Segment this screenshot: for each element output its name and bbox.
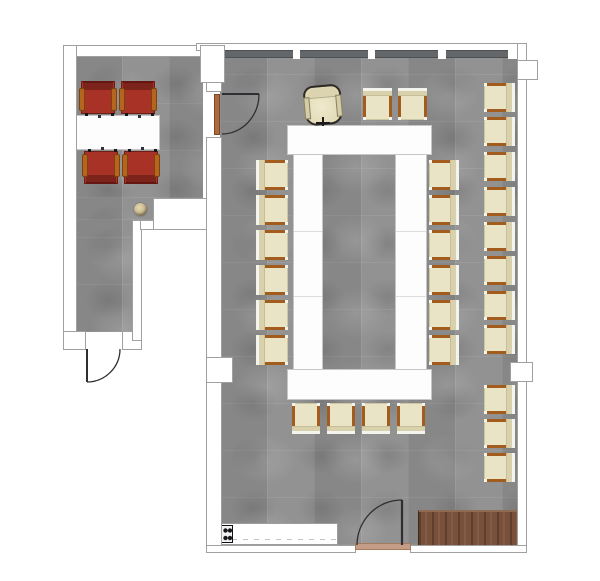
red-task-chair: [121, 81, 155, 114]
conference-chair: [484, 453, 515, 482]
chair-backrest: [363, 88, 392, 96]
chair-armrest: [429, 362, 450, 365]
chair-backrest: [506, 117, 515, 146]
chair-backrest: [450, 265, 459, 295]
chair-armrest: [119, 88, 125, 111]
chair-armrest: [429, 327, 450, 330]
chair-armrest: [265, 327, 288, 330]
chair-backrest: [450, 195, 459, 225]
conference-chair: [256, 335, 288, 365]
conference-chair: [484, 117, 515, 146]
chair-armrest: [303, 97, 311, 119]
conference-chair: [327, 403, 355, 434]
chair-armrest: [265, 257, 288, 260]
chair-armrest: [292, 403, 295, 426]
chair-backrest: [327, 426, 355, 434]
conference-chair: [429, 195, 459, 225]
chair-armrest: [362, 403, 365, 426]
chair-armrest: [317, 403, 320, 426]
conference-chair: [429, 300, 459, 330]
door-leaf-in-left-wall: [214, 94, 220, 135]
chair-backrest: [506, 453, 515, 482]
chair-backrest: [307, 87, 338, 100]
conference-chair: [484, 291, 515, 320]
conference-chair: [292, 403, 320, 434]
chair-armrest: [265, 292, 288, 295]
side-room-table: [75, 115, 160, 150]
pillar-top-left: [200, 45, 225, 83]
chair-armrest: [265, 222, 288, 225]
chair-backrest: [123, 81, 153, 90]
step-wall-lip: [140, 220, 154, 230]
chair-armrest: [424, 96, 427, 120]
side-office-top-wall: [63, 45, 207, 57]
conference-chair: [484, 419, 515, 448]
chair-armrest: [327, 403, 330, 426]
conference-chair: [484, 83, 515, 112]
chair-armrest: [151, 88, 157, 111]
conference-chair: [484, 152, 515, 181]
chair-armrest: [397, 403, 400, 426]
entrance-door-threshold: [355, 543, 411, 550]
chair-backrest: [397, 426, 425, 434]
chair-backrest: [256, 230, 265, 260]
chair-backrest: [86, 175, 116, 184]
chair-armrest: [484, 351, 506, 354]
chair-armrest: [387, 403, 390, 426]
conference-chair: [256, 230, 288, 260]
chair-armrest: [484, 282, 506, 285]
chair-armrest: [363, 96, 366, 120]
chair-armrest: [114, 154, 120, 177]
kitchen-counter: [218, 523, 338, 545]
u-table-left-leg: [293, 154, 323, 370]
chair-armrest: [429, 257, 450, 260]
chair-armrest: [484, 453, 506, 456]
chair-armrest: [484, 152, 506, 155]
chair-backrest: [450, 230, 459, 260]
chair-armrest: [82, 154, 88, 177]
pillar-left-mid: [206, 357, 233, 383]
chair-backrest: [256, 265, 265, 295]
chair-armrest: [484, 248, 506, 251]
conference-chair: [484, 256, 515, 285]
chair-armrest: [429, 187, 450, 190]
chair-backrest: [362, 426, 390, 434]
red-task-chair: [124, 151, 158, 184]
floor-plan: [0, 0, 600, 581]
chair-armrest: [265, 300, 288, 303]
chair-armrest: [265, 265, 288, 268]
chair-armrest: [429, 265, 450, 268]
u-table-right-leg: [395, 154, 427, 370]
red-task-chair: [84, 151, 118, 184]
executive-chair: [302, 83, 343, 126]
wood-sideboard: [418, 510, 518, 547]
chair-backrest: [506, 187, 515, 216]
conference-chair: [256, 195, 288, 225]
chair-armrest: [484, 256, 506, 259]
chair-backrest: [256, 160, 265, 190]
chair-backrest: [506, 291, 515, 320]
chair-armrest: [429, 222, 450, 225]
window-mullion: [508, 49, 517, 59]
chair-armrest: [265, 335, 288, 338]
u-table-bottom: [287, 369, 432, 400]
chair-armrest: [429, 230, 450, 233]
conference-chair: [429, 230, 459, 260]
chair-armrest: [265, 195, 288, 198]
chair-armrest: [265, 187, 288, 190]
chair-backrest: [256, 300, 265, 330]
chair-armrest: [265, 160, 288, 163]
conference-chair: [429, 160, 459, 190]
chair-backrest: [506, 385, 515, 414]
conference-chair: [429, 265, 459, 295]
chair-backrest: [126, 175, 156, 184]
chair-armrest: [429, 300, 450, 303]
chair-armrest: [352, 403, 355, 426]
chair-armrest: [429, 160, 450, 163]
chair-backrest: [83, 81, 113, 90]
chair-armrest: [265, 362, 288, 365]
conference-chair: [484, 187, 515, 216]
chair-armrest: [484, 83, 506, 86]
chair-armrest: [484, 143, 506, 146]
waste-bin: [133, 202, 148, 217]
chair-backrest: [506, 419, 515, 448]
chair-armrest: [429, 292, 450, 295]
corridor-floor: [75, 220, 132, 332]
side-office-left-wall: [63, 45, 77, 350]
chair-armrest: [111, 88, 117, 111]
conference-chair: [256, 265, 288, 295]
conference-chair: [362, 403, 390, 434]
conference-chair: [429, 335, 459, 365]
chair-armrest: [429, 195, 450, 198]
conference-bottom-wall-left: [206, 545, 356, 553]
chair-backrest: [450, 335, 459, 365]
door-swing-arc: [87, 349, 120, 382]
chair-armrest: [484, 479, 506, 482]
chair-armrest: [429, 335, 450, 338]
chair-backrest: [506, 222, 515, 251]
chair-armrest: [484, 411, 506, 414]
chair-armrest: [122, 154, 128, 177]
chair-armrest: [484, 222, 506, 225]
conference-chair: [256, 300, 288, 330]
window-mullion: [368, 49, 375, 59]
stove-symbol: [221, 525, 233, 543]
chair-armrest: [484, 317, 506, 320]
red-task-chair: [81, 81, 115, 114]
chair-armrest: [484, 385, 506, 388]
chair-armrest: [484, 117, 506, 120]
chair-backrest: [450, 300, 459, 330]
chair-armrest: [389, 96, 392, 120]
chair-armrest: [79, 88, 85, 111]
conference-chair: [484, 222, 515, 251]
corridor-right-wall: [132, 220, 142, 341]
chair-armrest: [484, 419, 506, 422]
conference-chair: [484, 325, 515, 354]
pillar-right-mid: [510, 362, 533, 382]
step-wall-block: [153, 198, 208, 230]
conference-right-wall: [517, 43, 527, 553]
chair-backrest: [506, 152, 515, 181]
chair-backrest: [506, 325, 515, 354]
conference-chair: [363, 88, 392, 120]
chair-armrest: [154, 154, 160, 177]
pillar-top-right: [517, 60, 538, 80]
conference-chair: [256, 160, 288, 190]
chair-backrest: [450, 160, 459, 190]
chair-backrest: [256, 335, 265, 365]
chair-armrest: [484, 213, 506, 216]
chair-armrest: [484, 187, 506, 190]
chair-backrest: [292, 426, 320, 434]
chair-armrest: [484, 178, 506, 181]
conference-chair: [484, 385, 515, 414]
side-office-bottom-wall-left: [63, 331, 86, 350]
chair-backrest: [398, 88, 427, 96]
chair-armrest: [398, 96, 401, 120]
chair-armrest: [484, 325, 506, 328]
conference-left-wall-lower: [206, 137, 222, 553]
conference-bottom-wall-right: [410, 545, 527, 553]
window-mullion: [438, 49, 446, 59]
u-table-top: [287, 125, 432, 155]
window-mullion: [293, 49, 300, 59]
conference-chair: [397, 403, 425, 434]
chair-backrest: [256, 195, 265, 225]
chair-backrest: [506, 83, 515, 112]
chair-armrest: [484, 291, 506, 294]
chair-armrest: [422, 403, 425, 426]
chair-armrest: [265, 230, 288, 233]
conference-chair: [398, 88, 427, 120]
chair-armrest: [484, 109, 506, 112]
chair-backrest: [506, 256, 515, 285]
chair-armrest: [484, 445, 506, 448]
